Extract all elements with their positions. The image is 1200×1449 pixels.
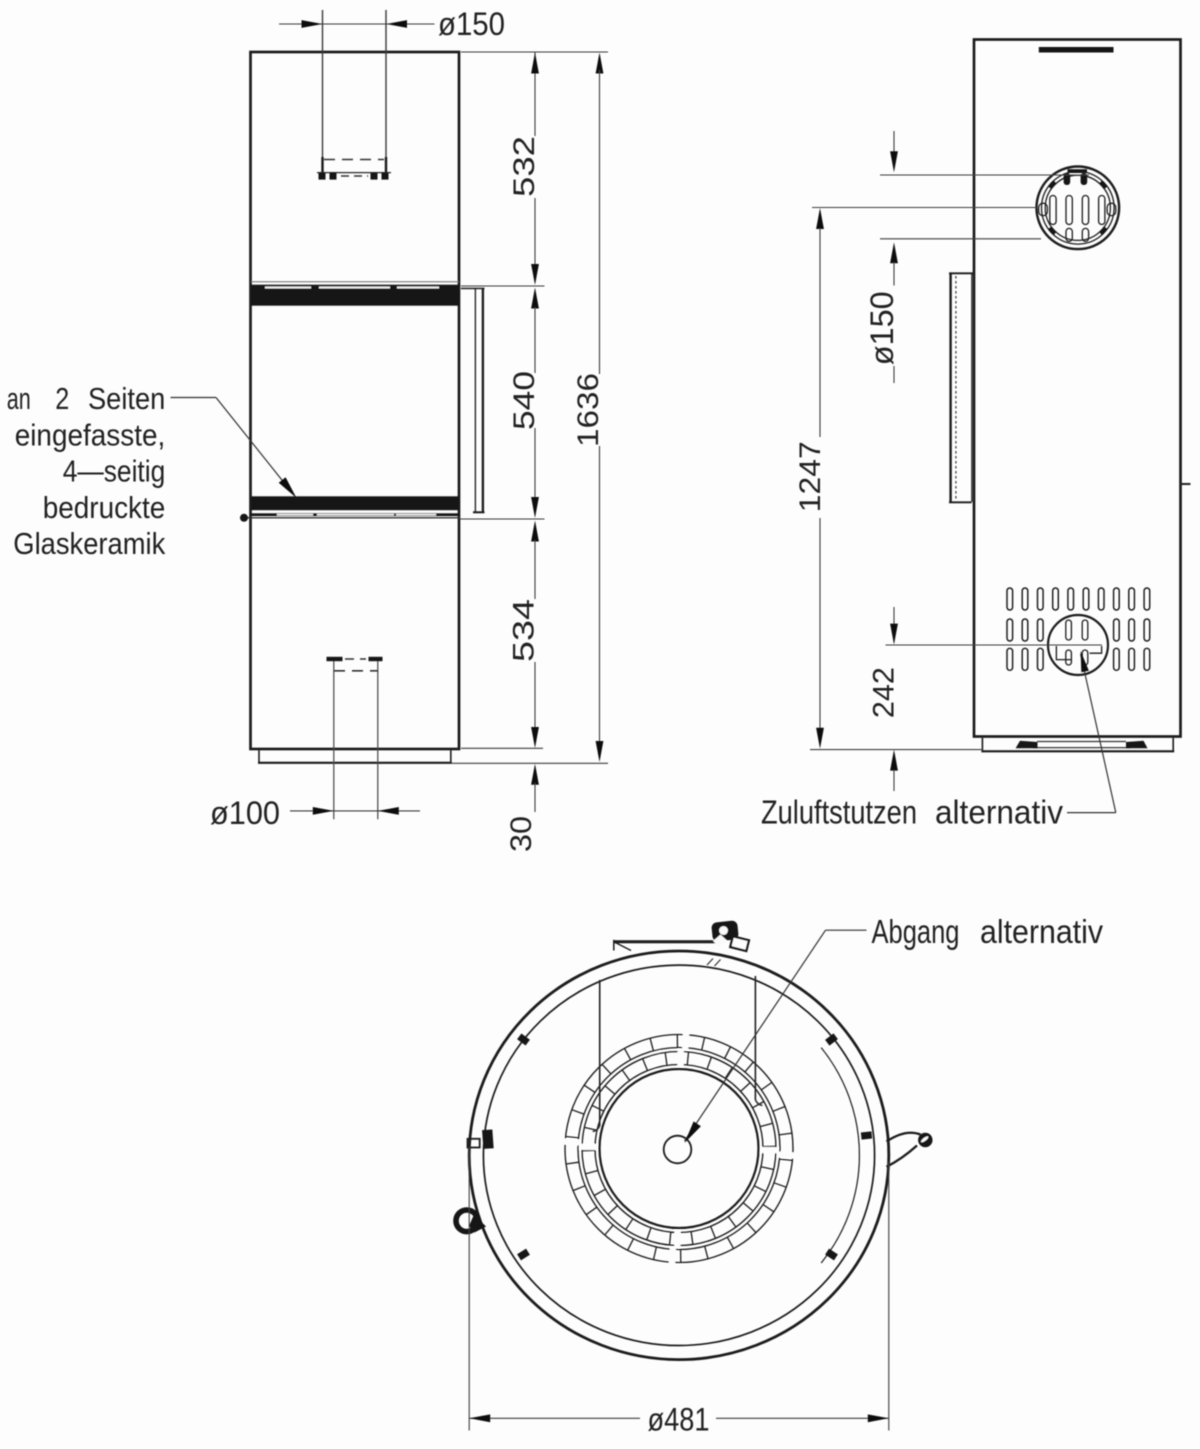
svg-text:1247: 1247 bbox=[794, 441, 827, 512]
svg-text:30: 30 bbox=[505, 816, 538, 852]
svg-text:alternativ: alternativ bbox=[980, 913, 1103, 950]
svg-text:ø150: ø150 bbox=[864, 291, 900, 365]
svg-text:Glaskeramik: Glaskeramik bbox=[13, 526, 165, 561]
svg-text:4—seitig: 4—seitig bbox=[63, 454, 166, 489]
svg-text:Seiten: Seiten bbox=[88, 381, 165, 416]
svg-text:532: 532 bbox=[508, 136, 541, 197]
svg-text:eingefasste,: eingefasste, bbox=[15, 418, 166, 453]
svg-text:Abgang: Abgang bbox=[872, 913, 960, 950]
svg-text:Zuluftstutzen: Zuluftstutzen bbox=[761, 794, 917, 831]
svg-text:ø100: ø100 bbox=[210, 795, 280, 831]
svg-text:242: 242 bbox=[868, 667, 901, 718]
svg-text:2: 2 bbox=[55, 381, 69, 416]
svg-text:540: 540 bbox=[508, 371, 541, 430]
svg-text:534: 534 bbox=[508, 599, 541, 662]
svg-text:ø481: ø481 bbox=[648, 1402, 710, 1438]
svg-text:alternativ: alternativ bbox=[935, 794, 1063, 831]
svg-text:1636: 1636 bbox=[572, 373, 605, 447]
svg-text:an: an bbox=[7, 381, 31, 416]
svg-text:bedruckte: bedruckte bbox=[43, 490, 166, 525]
svg-text:ø150: ø150 bbox=[438, 6, 505, 42]
